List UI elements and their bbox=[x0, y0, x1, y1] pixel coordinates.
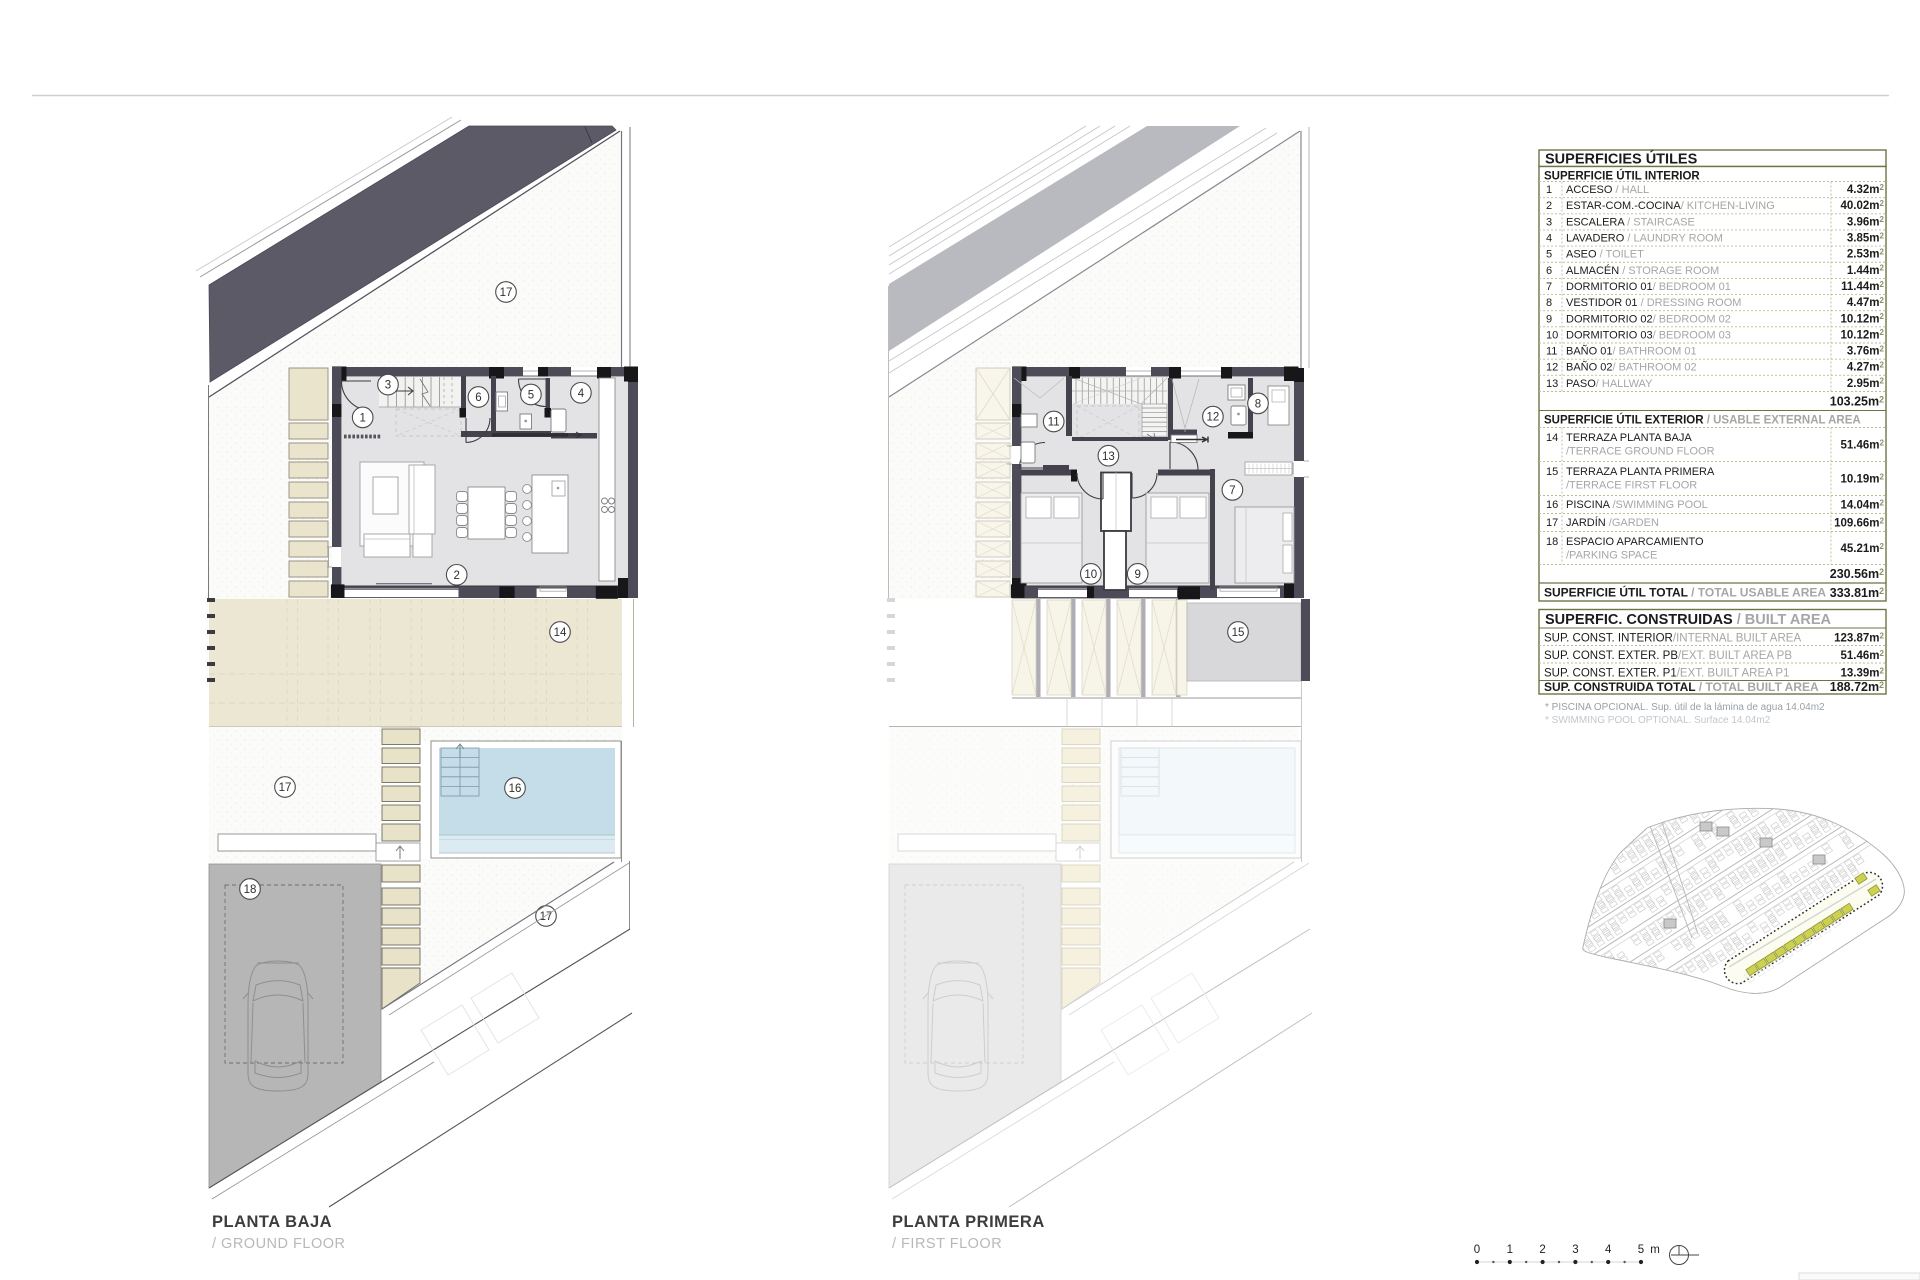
svg-text:TERRAZA PLANTA PRIMERA: TERRAZA PLANTA PRIMERA bbox=[1566, 466, 1715, 478]
svg-text:3.76m2: 3.76m2 bbox=[1847, 344, 1885, 357]
svg-text:/TERRACE FIRST FLOOR: /TERRACE FIRST FLOOR bbox=[1566, 480, 1697, 492]
svg-text:15: 15 bbox=[1546, 466, 1558, 478]
svg-text:SUP. CONST. EXTER. PB/EXT. BUI: SUP. CONST. EXTER. PB/EXT. BUILT AREA PB bbox=[1544, 650, 1792, 662]
svg-text:9: 9 bbox=[1134, 569, 1140, 581]
svg-text:51.46m2: 51.46m2 bbox=[1841, 439, 1885, 452]
svg-text:ESCALERA / STAIRCASE: ESCALERA / STAIRCASE bbox=[1566, 216, 1695, 228]
svg-text:SUP. CONSTRUIDA TOTAL / TOTAL: SUP. CONSTRUIDA TOTAL / TOTAL BUILT AREA bbox=[1544, 680, 1819, 694]
svg-text:9: 9 bbox=[1546, 313, 1552, 325]
svg-text:10.12m2: 10.12m2 bbox=[1841, 328, 1885, 341]
svg-text:PLANTA BAJA: PLANTA BAJA bbox=[212, 1213, 332, 1231]
svg-text:17: 17 bbox=[500, 287, 513, 299]
svg-text:8: 8 bbox=[1546, 297, 1552, 309]
svg-text:BAÑO 01/ BATHROOM 01: BAÑO 01/ BATHROOM 01 bbox=[1566, 345, 1697, 358]
svg-text:PLANTA PRIMERA: PLANTA PRIMERA bbox=[892, 1213, 1045, 1231]
svg-text:JARDÍN /GARDEN: JARDÍN /GARDEN bbox=[1566, 516, 1659, 529]
svg-text:4: 4 bbox=[1546, 233, 1552, 245]
svg-text:DORMITORIO 01/ BEDROOM 01: DORMITORIO 01/ BEDROOM 01 bbox=[1566, 281, 1731, 293]
svg-text:4.27m2: 4.27m2 bbox=[1847, 361, 1885, 374]
svg-text:/PARKING SPACE: /PARKING SPACE bbox=[1566, 550, 1657, 562]
svg-text:10.12m2: 10.12m2 bbox=[1841, 312, 1885, 325]
svg-text:11: 11 bbox=[1546, 346, 1557, 358]
svg-text:ALMACÉN / STORAGE ROOM: ALMACÉN / STORAGE ROOM bbox=[1566, 264, 1719, 277]
svg-text:2.53m2: 2.53m2 bbox=[1847, 247, 1885, 260]
svg-text:* PISCINA OPCIONAL. Sup. útil: * PISCINA OPCIONAL. Sup. útil de la lámi… bbox=[1545, 702, 1825, 713]
svg-text:2: 2 bbox=[453, 570, 459, 582]
svg-text:1: 1 bbox=[359, 413, 365, 425]
svg-text:SUPERFICIE ÚTIL TOTAL / TOTAL: SUPERFICIE ÚTIL TOTAL / TOTAL USABLE ARE… bbox=[1544, 585, 1826, 600]
svg-text:2: 2 bbox=[1539, 1244, 1545, 1256]
svg-text:ACCESO / HALL: ACCESO / HALL bbox=[1566, 184, 1649, 196]
svg-text:13.39m2: 13.39m2 bbox=[1841, 666, 1885, 679]
svg-text:4: 4 bbox=[578, 388, 585, 400]
svg-text:1: 1 bbox=[1507, 1244, 1513, 1256]
svg-text:SUPERFICIE ÚTIL EXTERIOR / USA: SUPERFICIE ÚTIL EXTERIOR / USABLE EXTERN… bbox=[1544, 414, 1861, 427]
svg-text:PISCINA /SWIMMING POOL: PISCINA /SWIMMING POOL bbox=[1566, 499, 1708, 511]
svg-text:5: 5 bbox=[1638, 1244, 1644, 1256]
svg-text:230.56m2: 230.56m2 bbox=[1830, 567, 1884, 581]
svg-text:/TERRACE GROUND FLOOR: /TERRACE GROUND FLOOR bbox=[1566, 446, 1715, 458]
svg-text:ASEO / TOILET: ASEO / TOILET bbox=[1566, 249, 1644, 261]
svg-text:14: 14 bbox=[1546, 432, 1558, 444]
svg-text:TERRAZA PLANTA BAJA: TERRAZA PLANTA BAJA bbox=[1566, 432, 1692, 444]
svg-text:SUPERFICIES ÚTILES: SUPERFICIES ÚTILES bbox=[1545, 150, 1698, 168]
svg-text:4.32m2: 4.32m2 bbox=[1847, 183, 1885, 196]
svg-text:17: 17 bbox=[1546, 517, 1558, 529]
svg-text:1: 1 bbox=[1546, 184, 1552, 196]
svg-text:4: 4 bbox=[1605, 1244, 1612, 1256]
svg-text:4.47m2: 4.47m2 bbox=[1847, 296, 1885, 309]
svg-text:18: 18 bbox=[244, 884, 257, 896]
svg-text:3.96m2: 3.96m2 bbox=[1847, 215, 1885, 228]
svg-text:10.19m2: 10.19m2 bbox=[1841, 473, 1885, 486]
svg-text:3: 3 bbox=[385, 380, 391, 392]
svg-text:12: 12 bbox=[1207, 412, 1220, 424]
svg-text:10: 10 bbox=[1084, 569, 1097, 581]
svg-text:ESTAR-COM.-COCINA/ KITCHEN-LIV: ESTAR-COM.-COCINA/ KITCHEN-LIVING bbox=[1566, 200, 1775, 212]
svg-text:12: 12 bbox=[1546, 362, 1558, 374]
svg-text:109.66m2: 109.66m2 bbox=[1834, 517, 1884, 530]
svg-text:BAÑO 02/ BATHROOM 02: BAÑO 02/ BATHROOM 02 bbox=[1566, 361, 1697, 374]
svg-text:0: 0 bbox=[1474, 1244, 1480, 1256]
svg-text:45.21m2: 45.21m2 bbox=[1841, 542, 1885, 555]
svg-text:2: 2 bbox=[1546, 200, 1552, 212]
svg-text:1.44m2: 1.44m2 bbox=[1847, 264, 1885, 277]
svg-text:51.46m2: 51.46m2 bbox=[1841, 649, 1885, 662]
svg-text:5: 5 bbox=[1546, 249, 1552, 261]
svg-text:11.44m2: 11.44m2 bbox=[1841, 280, 1884, 293]
svg-text:15: 15 bbox=[1232, 627, 1245, 639]
svg-text:18: 18 bbox=[1546, 536, 1558, 548]
svg-text:16: 16 bbox=[1546, 499, 1558, 511]
svg-text:103.25m2: 103.25m2 bbox=[1830, 394, 1884, 408]
svg-text:13: 13 bbox=[1546, 378, 1558, 390]
svg-text:m: m bbox=[1650, 1244, 1660, 1256]
svg-text:14: 14 bbox=[554, 627, 567, 639]
svg-text:17: 17 bbox=[279, 782, 292, 794]
svg-text:40.02m2: 40.02m2 bbox=[1841, 199, 1885, 212]
svg-text:2.95m2: 2.95m2 bbox=[1847, 377, 1885, 390]
svg-text:6: 6 bbox=[1546, 265, 1552, 277]
svg-text:/ FIRST FLOOR: / FIRST FLOOR bbox=[892, 1236, 1002, 1252]
svg-text:6: 6 bbox=[475, 392, 481, 404]
svg-text:/ GROUND FLOOR: / GROUND FLOOR bbox=[212, 1236, 345, 1252]
svg-text:3: 3 bbox=[1546, 216, 1552, 228]
svg-text:SUP. CONST. INTERIOR/INTERNAL: SUP. CONST. INTERIOR/INTERNAL BUILT AREA bbox=[1544, 633, 1801, 645]
svg-text:7: 7 bbox=[1229, 485, 1235, 497]
svg-text:5: 5 bbox=[528, 390, 534, 402]
svg-text:3.85m2: 3.85m2 bbox=[1847, 231, 1885, 244]
svg-text:333.81m2: 333.81m2 bbox=[1830, 586, 1884, 600]
svg-text:DORMITORIO 03/ BEDROOM 03: DORMITORIO 03/ BEDROOM 03 bbox=[1566, 329, 1731, 341]
svg-text:188.72m2: 188.72m2 bbox=[1830, 680, 1884, 694]
svg-text:123.87m2: 123.87m2 bbox=[1834, 631, 1884, 644]
svg-text:LAVADERO / LAUNDRY ROOM: LAVADERO / LAUNDRY ROOM bbox=[1566, 233, 1723, 245]
svg-text:* SWIMMING POOL OPTIONAL. Surf: * SWIMMING POOL OPTIONAL. Surface 14.04m… bbox=[1545, 715, 1771, 726]
svg-text:13: 13 bbox=[1102, 451, 1115, 463]
svg-text:11: 11 bbox=[1048, 417, 1060, 429]
svg-text:8: 8 bbox=[1255, 399, 1261, 411]
svg-text:SUPERFIC. CONSTRUIDAS / BUILT: SUPERFIC. CONSTRUIDAS / BUILT AREA bbox=[1545, 612, 1832, 628]
svg-text:3: 3 bbox=[1572, 1244, 1578, 1256]
svg-text:DORMITORIO 02/ BEDROOM 02: DORMITORIO 02/ BEDROOM 02 bbox=[1566, 313, 1731, 325]
svg-text:PASO/ HALLWAY: PASO/ HALLWAY bbox=[1566, 378, 1653, 390]
svg-text:SUP. CONST. EXTER. P1/EXT. BUI: SUP. CONST. EXTER. P1/EXT. BUILT AREA P1 bbox=[1544, 668, 1789, 680]
svg-text:ESPACIO APARCAMIENTO: ESPACIO APARCAMIENTO bbox=[1566, 536, 1704, 548]
svg-text:10: 10 bbox=[1546, 329, 1558, 341]
svg-text:7: 7 bbox=[1546, 281, 1552, 293]
svg-text:SUPERFICIE ÚTIL INTERIOR: SUPERFICIE ÚTIL INTERIOR bbox=[1544, 170, 1700, 183]
svg-text:16: 16 bbox=[509, 783, 522, 795]
svg-text:14.04m2: 14.04m2 bbox=[1841, 499, 1885, 512]
svg-text:VESTIDOR 01 / DRESSING ROOM: VESTIDOR 01 / DRESSING ROOM bbox=[1566, 297, 1741, 309]
